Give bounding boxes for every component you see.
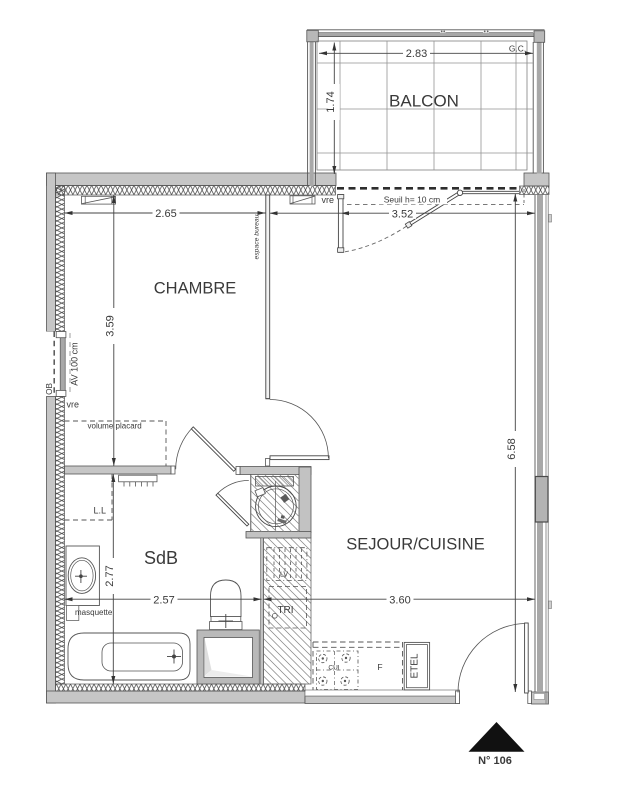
svg-text:6.58: 6.58 xyxy=(506,438,518,459)
svg-text:BALCON: BALCON xyxy=(389,92,459,111)
svg-text:3.60: 3.60 xyxy=(389,594,410,606)
svg-text:2.57: 2.57 xyxy=(153,594,174,606)
svg-text:LV: LV xyxy=(280,572,288,579)
svg-text:OB: OB xyxy=(45,383,54,395)
svg-text:L.L: L.L xyxy=(94,506,107,516)
svg-text:F: F xyxy=(377,662,382,672)
svg-text:TRI: TRI xyxy=(277,605,293,616)
svg-text:2.77: 2.77 xyxy=(104,565,116,586)
svg-text:2.83: 2.83 xyxy=(406,48,427,60)
svg-text:ETEL: ETEL xyxy=(409,653,420,678)
svg-text:N° 106: N° 106 xyxy=(478,755,512,767)
svg-text:vre: vre xyxy=(322,195,335,205)
svg-text:2.65: 2.65 xyxy=(155,208,176,220)
svg-text:masquette: masquette xyxy=(75,608,113,617)
svg-text:espace bureau: espace bureau xyxy=(254,214,261,259)
svg-text:volume placard: volume placard xyxy=(88,421,142,430)
svg-text:3.59: 3.59 xyxy=(105,315,117,336)
svg-text:AV 100 cm: AV 100 cm xyxy=(70,342,80,385)
svg-text:SEJOUR/CUISINE: SEJOUR/CUISINE xyxy=(346,536,484,554)
svg-text:CUI: CUI xyxy=(328,665,339,672)
svg-text:G.C.: G.C. xyxy=(509,44,526,54)
svg-text:CHAMBRE: CHAMBRE xyxy=(154,280,237,298)
svg-text:SdB: SdB xyxy=(144,548,178,568)
svg-text:3.52: 3.52 xyxy=(392,208,413,220)
svg-text:1.74: 1.74 xyxy=(325,91,337,112)
svg-text:Seuil h= 10 cm: Seuil h= 10 cm xyxy=(384,195,440,205)
svg-text:vre: vre xyxy=(67,400,80,410)
